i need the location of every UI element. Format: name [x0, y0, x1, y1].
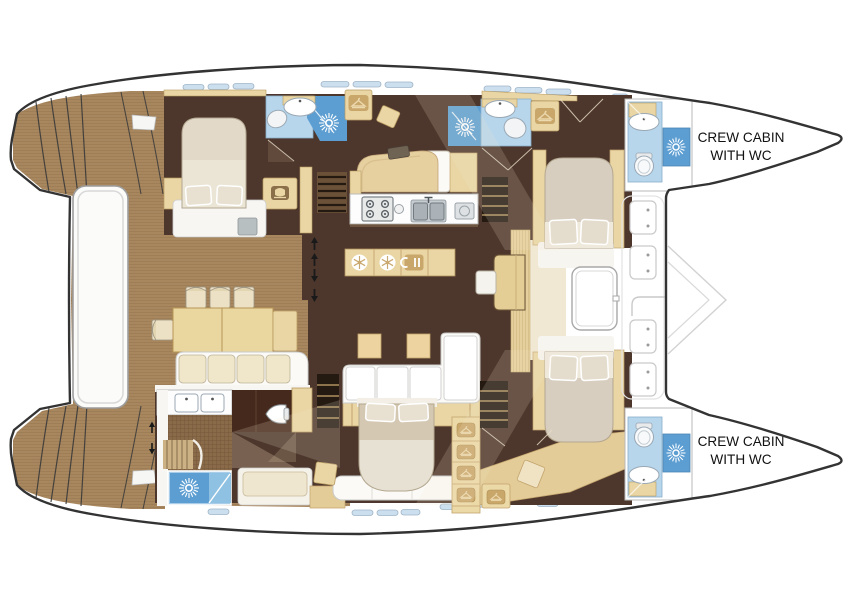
- svg-text:WITH WC: WITH WC: [710, 452, 771, 467]
- svg-text:WITH WC: WITH WC: [710, 148, 771, 163]
- svg-text:CREW CABIN: CREW CABIN: [698, 434, 785, 449]
- svg-text:CREW CABIN: CREW CABIN: [698, 130, 785, 145]
